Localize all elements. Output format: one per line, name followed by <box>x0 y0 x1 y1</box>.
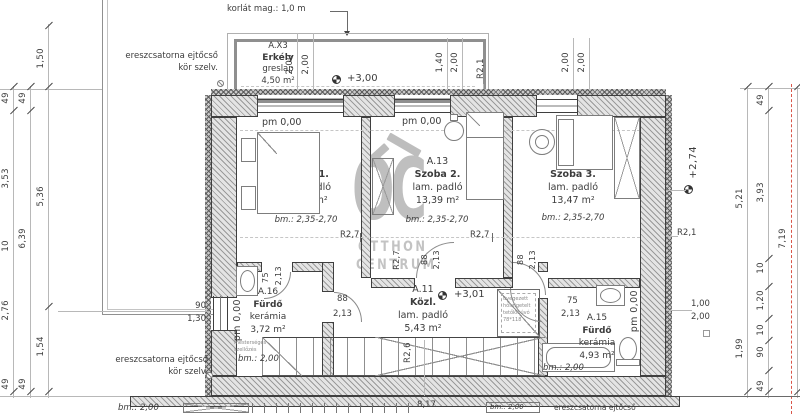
door-dim: 88 <box>420 254 429 265</box>
room-finish: kerámia <box>232 311 304 324</box>
vent-note-1: mesterséges <box>234 340 266 346</box>
dim-label: 90 <box>757 346 767 358</box>
room-finish: lam. padló <box>528 181 618 194</box>
radius-label-left: R2,7 <box>340 231 359 241</box>
nightstand-room1-b <box>241 186 256 210</box>
dim-label: 3,53 <box>2 168 12 189</box>
dim-line-left-b <box>30 86 31 398</box>
level-value-hall: +3,01 <box>454 289 485 301</box>
dim-tick <box>765 337 773 345</box>
dim-label: 1,20 <box>757 290 767 311</box>
room-height-room3: bm.: 2,35-2,70 <box>519 214 627 224</box>
dim-line-left-a <box>13 86 14 398</box>
door-dim: 2,13 <box>274 266 283 285</box>
dim-tick <box>765 83 773 91</box>
wall-light-room2 <box>444 121 464 141</box>
wall-right <box>640 117 666 376</box>
window-dim: 1,00 <box>691 300 710 310</box>
room-id: A.16 <box>232 286 304 299</box>
roof-hatch-text-4: 78*118 <box>503 317 521 323</box>
dim-label: 1,40 <box>436 52 446 73</box>
radius-label-hall: R2,7 <box>392 250 401 270</box>
wall-top-corner <box>577 95 666 117</box>
dim-tick <box>45 388 53 396</box>
room-height-room2: bm.: 2,35-2,70 <box>383 216 491 226</box>
stairs-run-dim: 8,17 <box>417 401 436 411</box>
door-dim: 2,13 <box>528 250 537 269</box>
dim-label-total: 7,19 <box>779 228 789 249</box>
wall-bottom <box>211 376 666 396</box>
wall-bath1-north-2 <box>292 262 324 272</box>
door-dim: 88 <box>337 295 348 305</box>
insulation-right <box>666 95 672 396</box>
detail-square-right <box>703 330 710 337</box>
dim-tick <box>765 315 773 323</box>
dim-label: 2,00 <box>578 52 588 73</box>
dim-label: 3,93 <box>757 182 767 203</box>
room-name: Fürdő <box>232 299 304 312</box>
roof-hatch-text-1: üvegezett <box>503 296 528 302</box>
wall-bath2-west-1 <box>538 262 548 272</box>
dim-label: 2,00 <box>286 54 296 75</box>
dim-label: 2,00 <box>451 52 461 73</box>
downspout-symbol-bottom <box>206 372 213 379</box>
door-dim: 75 <box>567 297 578 307</box>
door-dim: 88 <box>516 254 525 265</box>
dim-line-right-c <box>797 86 798 398</box>
dim-label: 49 <box>757 94 767 106</box>
dim-line-right-b <box>768 86 769 398</box>
level-marker-hall <box>438 291 447 300</box>
floor-level-room1: pm 0,00 <box>262 118 301 129</box>
window-room3 <box>537 99 577 113</box>
railing-note: korlát mag.: 1,0 m <box>227 5 306 15</box>
radius-tick <box>360 233 361 242</box>
level-marker-balcony <box>332 75 341 84</box>
door-dim: 75 <box>261 272 270 283</box>
dim-connector-bottom-left <box>0 396 130 397</box>
radius-label-stairs: R2,6 <box>404 342 414 363</box>
dim-label: 6,39 <box>19 228 29 249</box>
level-value-balcony: +3,00 <box>347 73 378 85</box>
room-area: 5,43 m² <box>378 322 468 335</box>
roof-hatch-text-3: tetőkibúvó <box>503 310 530 316</box>
window-room1 <box>258 99 343 113</box>
dim-label: 1,99 <box>736 338 746 359</box>
room-height-room1: bm.: 2,35-2,70 <box>250 216 362 226</box>
dim-label: 5,36 <box>37 186 47 207</box>
balcony-axis-2 <box>313 33 314 95</box>
dim-label: 2,76 <box>2 300 12 321</box>
room-area: 13,47 m² <box>528 194 618 207</box>
level-value-attic: +2,74 <box>688 146 700 179</box>
room-name: Fürdő <box>558 325 636 338</box>
bed-room1-pillow-fold <box>257 132 277 154</box>
dim-label: 10 <box>2 240 12 252</box>
wall-left-upper <box>211 117 237 298</box>
dim-connector-top-right <box>740 88 800 89</box>
roof-hatch-text-2: hőszigetelt <box>503 303 530 309</box>
dim-label: 2,00 <box>562 52 572 73</box>
radius-leader-right <box>666 236 678 237</box>
dim-connector-bottom-right <box>666 396 800 397</box>
downspout-note-top-1: ereszcsatorna ejtőcső <box>113 52 218 62</box>
dim-line-left-c <box>48 24 49 398</box>
radius-label-top: R2,1 <box>477 58 487 79</box>
axis-line <box>462 38 463 95</box>
attic-level-leader <box>666 190 686 191</box>
dim-label: 1,54 <box>37 336 47 357</box>
room-finish: kerámia <box>558 337 636 350</box>
railing-leader-h <box>330 11 348 12</box>
door-dim: 2,13 <box>432 250 441 269</box>
downspout-note-bottom-1: ereszcsatorna ejtőcső <box>96 356 208 366</box>
window-dim-line-right <box>668 310 692 311</box>
partition-room2-room3 <box>503 117 513 278</box>
radius-tick <box>492 233 493 242</box>
railing-leader-v <box>347 11 348 32</box>
wardrobe-room3 <box>614 117 640 199</box>
door-dim: 2,13 <box>561 310 580 320</box>
slope-dash-lower <box>240 237 640 238</box>
staircase-axis <box>424 340 425 396</box>
downspout-note-bottom-right: ereszcsatorna ejtőcső <box>554 403 636 412</box>
floor-plan-sheet: OC OTTHON CENTRUM 49 3,53 10 2,76 49 49 … <box>0 0 800 414</box>
radius-label-right-wall: R2,1 <box>677 229 696 239</box>
neighbour-outline-inner <box>107 0 213 310</box>
window-dim: 1,30 <box>174 315 206 325</box>
floor-level-room2: pm 0,00 <box>402 117 441 128</box>
dim-tick <box>27 107 35 115</box>
window-room2 <box>395 99 450 113</box>
bed-room3-pillow <box>558 119 574 166</box>
balcony-axis-1 <box>297 33 298 95</box>
dim-label: 1,50 <box>37 48 47 69</box>
dim-tick <box>10 107 18 115</box>
downspout-note-top-2: kör szelv. <box>113 64 218 74</box>
wall-top-1 <box>211 95 258 117</box>
downspout-note-bottom-2: kör szelv. <box>96 368 208 378</box>
dim-tick <box>744 83 752 91</box>
context-line-top-left <box>0 89 102 90</box>
window-bath1 <box>213 296 228 330</box>
wall-light-room3-inner <box>535 135 549 149</box>
dim-label: 2,00 <box>302 54 312 75</box>
dim-label: 49 <box>2 378 12 390</box>
axis-line <box>589 38 590 95</box>
dim-label: 49 <box>19 378 29 390</box>
door-dim: 2,13 <box>333 310 352 320</box>
partition-room1-room2 <box>361 117 371 278</box>
dim-label: 5,21 <box>736 188 746 209</box>
dim-tick <box>765 283 773 291</box>
dim-tick <box>765 367 773 375</box>
wardrobe-room2 <box>372 158 394 215</box>
wall-bath2-north <box>548 278 640 288</box>
room-area: 3,72 m² <box>232 324 304 337</box>
washbasin-bath2-bowl <box>600 288 621 303</box>
room-id: A.X3 <box>242 41 314 53</box>
axis-line <box>573 38 574 95</box>
dim-label: 49 <box>2 92 12 104</box>
room-finish: lam. padló <box>378 309 468 322</box>
dim-label: 49 <box>19 92 29 104</box>
dim-tick <box>45 22 53 30</box>
footer-window <box>183 403 249 413</box>
room-area: 4,50 m² <box>242 76 314 88</box>
dim-tick <box>45 303 53 311</box>
wall-light-room2-base <box>450 114 458 121</box>
window-dim: 2,00 <box>691 313 710 323</box>
room-label-bath1: A.16 Fürdő kerámia 3,72 m² <box>232 286 304 336</box>
axis-line <box>447 38 448 95</box>
dim-line-right-a <box>747 86 748 398</box>
footer-height-left: bm.: 2,00 <box>118 404 159 414</box>
wall-bath1-east-1 <box>322 262 334 292</box>
room-height-bath2: bm.: 2,00 <box>543 364 584 374</box>
nightstand-room1-a <box>241 138 256 162</box>
dim-label: 10 <box>757 324 767 336</box>
footer-balusters <box>252 403 420 413</box>
section-line-red-dashed <box>791 84 792 414</box>
staircase-cross <box>375 337 545 376</box>
radius-label-right: R2,7 <box>470 231 489 241</box>
window-dim: 90 <box>180 302 206 312</box>
dim-tick <box>765 255 773 263</box>
room-height-bath1: bm.: 2,00 <box>238 355 279 365</box>
room-area: 4,93 m² <box>558 350 636 363</box>
dim-label: 10 <box>757 262 767 274</box>
bed-room2-fold <box>466 112 480 126</box>
wall-top-2 <box>343 95 395 117</box>
downspout-symbol-top <box>217 80 224 87</box>
footer-height-boxed: bm.: 2,00 <box>490 403 524 411</box>
vent-note-2: szellőzés <box>234 347 256 353</box>
dim-tick <box>744 388 752 396</box>
dim-label: 49 <box>757 380 767 392</box>
dim-tick <box>765 107 773 115</box>
